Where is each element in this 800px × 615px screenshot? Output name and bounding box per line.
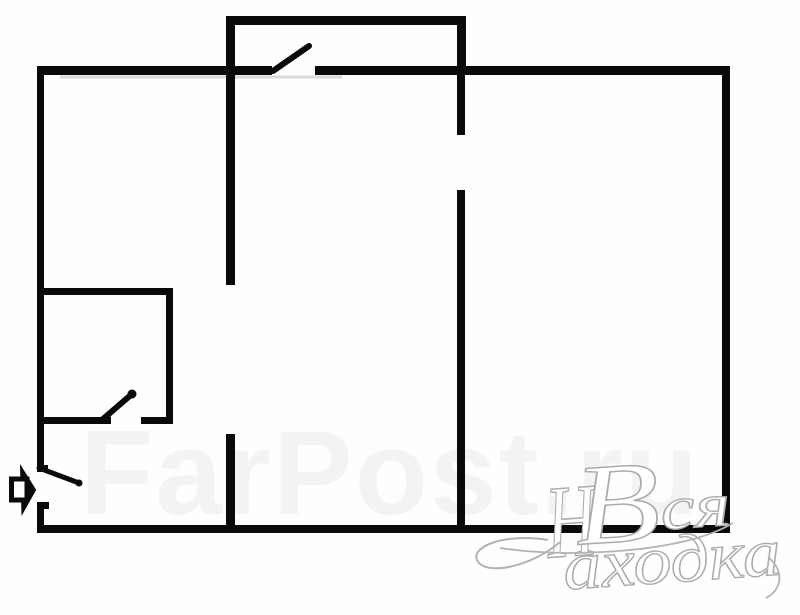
svg-text:аходка: аходка (560, 514, 783, 605)
